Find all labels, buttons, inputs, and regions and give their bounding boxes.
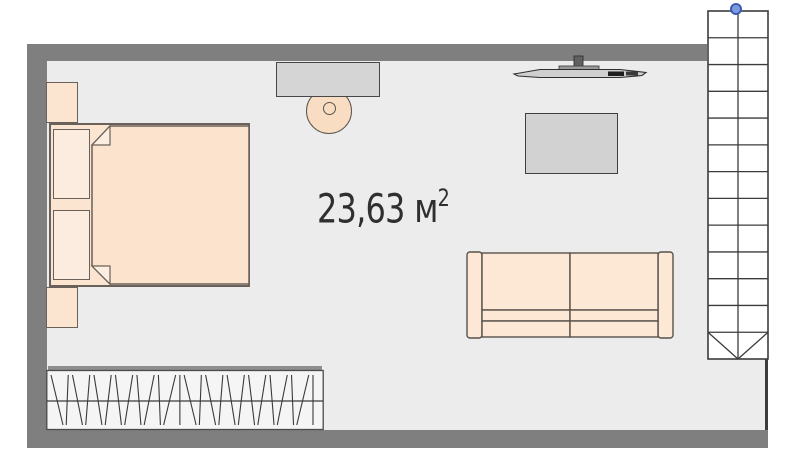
sofa-armrest-right <box>658 252 673 338</box>
nightstand-bottom[interactable] <box>46 287 78 328</box>
sofa-seat-strip-left-1 <box>482 310 570 321</box>
chair-knob <box>323 102 336 115</box>
selection-handle[interactable] <box>730 3 742 15</box>
room-area-label: 23,63м2 <box>317 186 449 232</box>
blanket-shape <box>92 126 249 284</box>
tv-detail-gray <box>626 72 638 76</box>
sofa-armrest-left <box>467 252 482 338</box>
wall-bottom <box>27 430 768 448</box>
wall-left <box>27 44 47 448</box>
wall-right-thin <box>765 359 768 430</box>
sofa-seat-strip-right-2 <box>570 321 658 337</box>
staircase[interactable] <box>707 10 769 360</box>
sofa-back-cushion-right <box>570 253 658 310</box>
bed-pillow-bottom[interactable] <box>53 210 90 280</box>
sofa-back-cushion-left <box>482 253 570 310</box>
area-superscript: 2 <box>438 184 449 212</box>
tv-detail-dark <box>608 72 624 77</box>
area-value: 23,63 <box>317 186 405 232</box>
floor-plan: 23,63м2 <box>0 0 800 469</box>
tv[interactable] <box>512 55 648 81</box>
nightstand-top[interactable] <box>46 82 78 123</box>
desk[interactable] <box>276 62 380 97</box>
blanket-fold-corner-top <box>92 126 110 145</box>
area-unit: м <box>414 186 437 232</box>
tv-stand-table[interactable] <box>525 113 618 174</box>
sofa-seat-strip-left-2 <box>482 321 570 337</box>
blanket-fold-corner-bottom <box>92 266 110 284</box>
sofa[interactable] <box>465 250 675 341</box>
sofa-seat-strip-right-1 <box>570 310 658 321</box>
wardrobe[interactable] <box>46 366 324 431</box>
bed-pillow-top[interactable] <box>53 129 90 199</box>
bed-blanket[interactable] <box>90 122 252 288</box>
